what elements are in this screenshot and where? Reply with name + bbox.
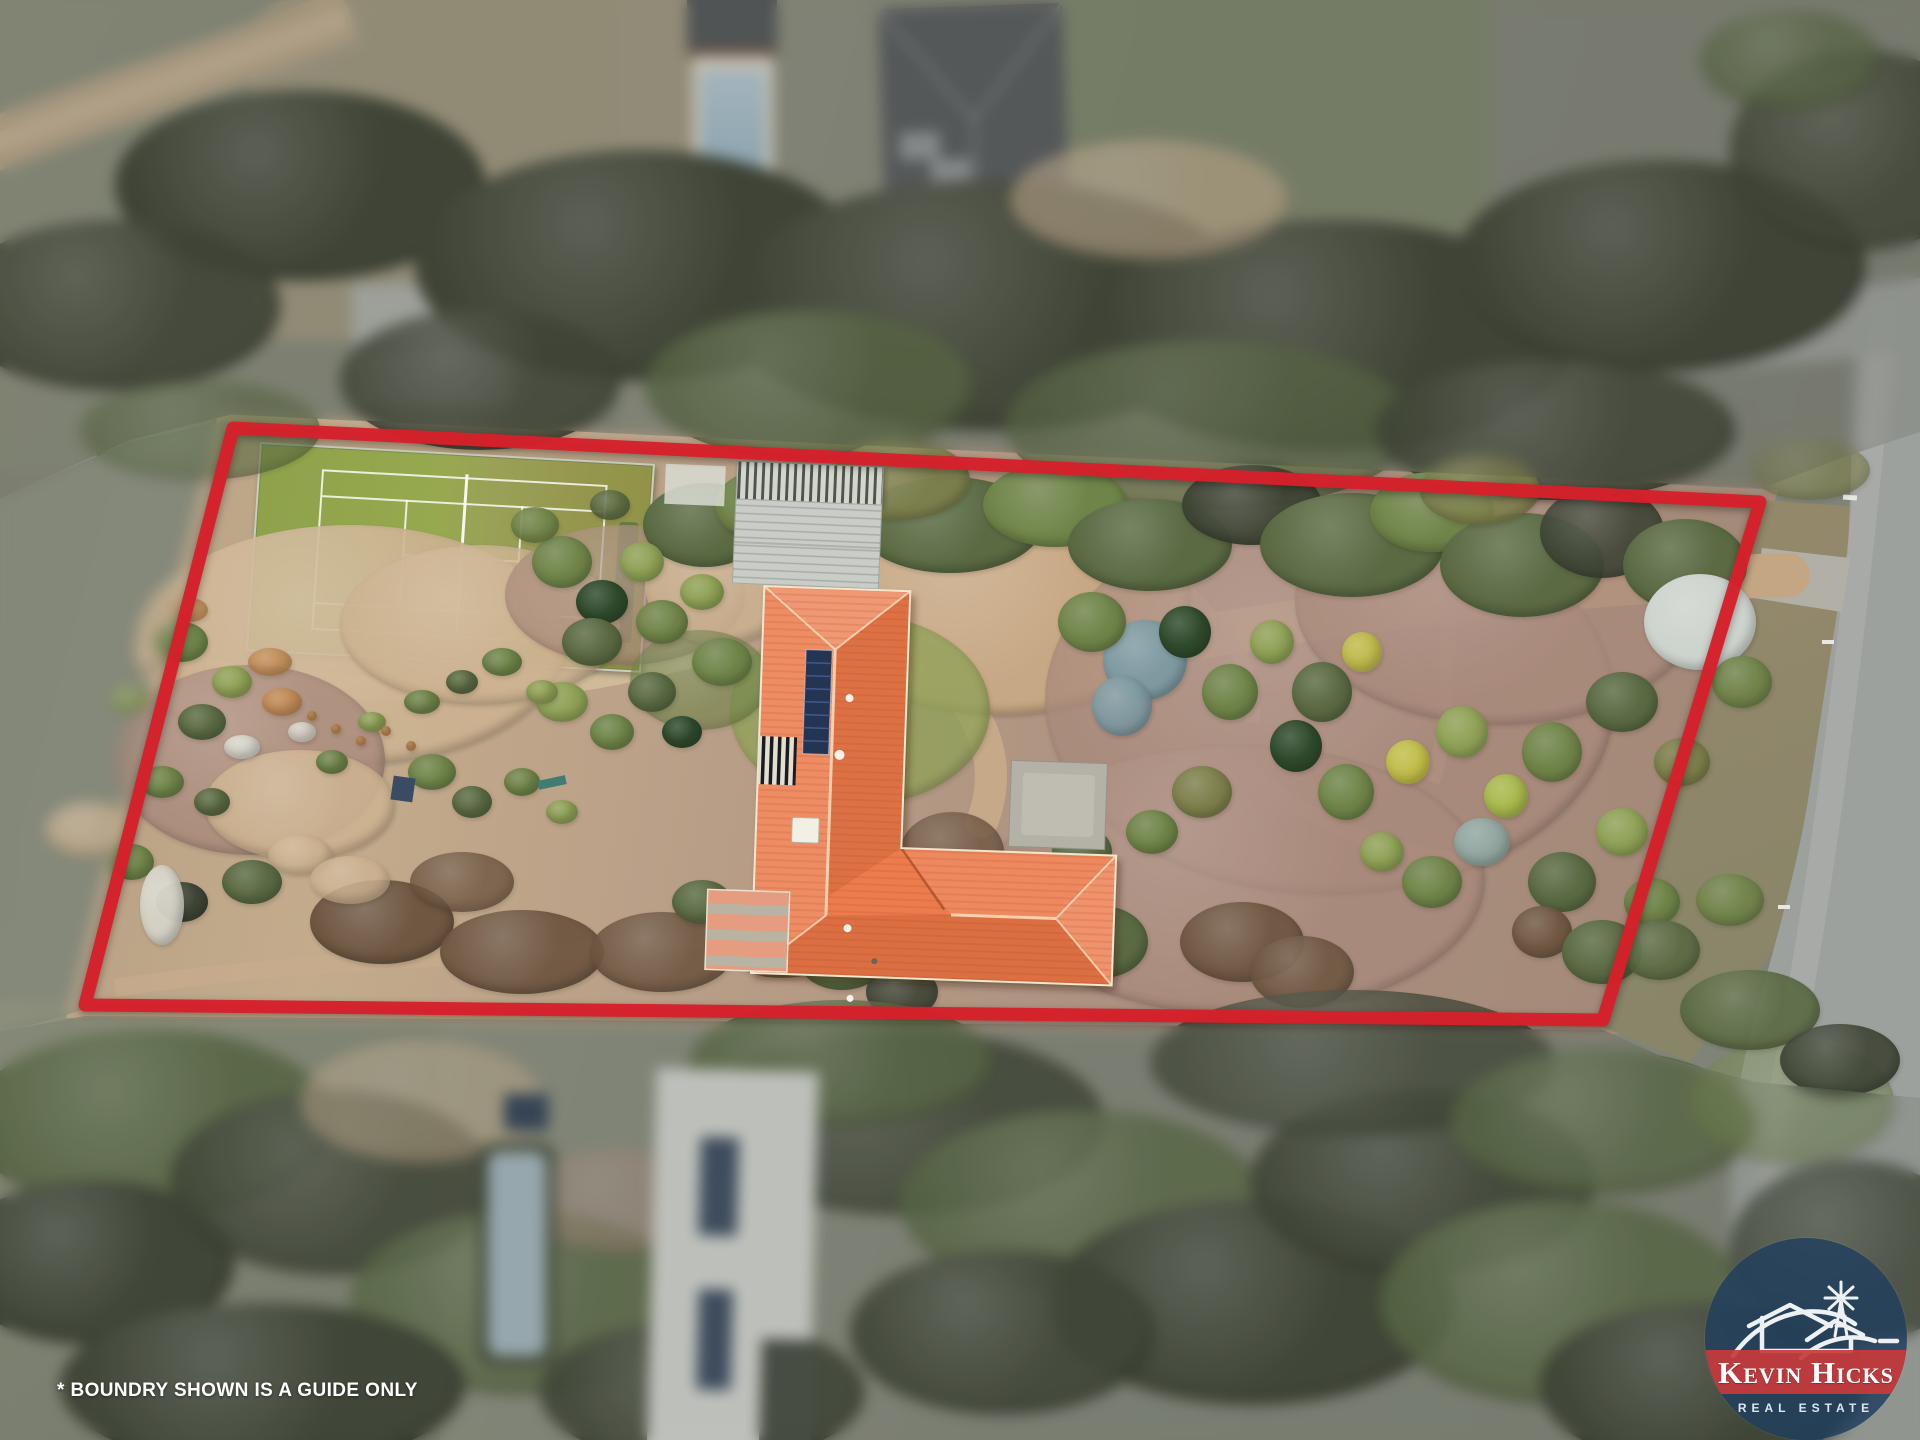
logo-brand-subtitle: REAL ESTATE [1705, 1401, 1907, 1415]
logo-brand-name: Kevin Hicks [1718, 1357, 1894, 1388]
agency-logo: Kevin Hicks REAL ESTATE [1705, 1238, 1907, 1440]
aerial-property-photo: Kevin Hicks REAL ESTATE * BOUNDRY SHOWN … [0, 0, 1920, 1440]
boundary-disclaimer-text: * BOUNDRY SHOWN IS A GUIDE ONLY [57, 1380, 418, 1402]
logo-band: Kevin Hicks [1705, 1350, 1907, 1394]
boundary-polygon [85, 428, 1760, 1020]
boundary-overlay [0, 0, 1920, 1440]
